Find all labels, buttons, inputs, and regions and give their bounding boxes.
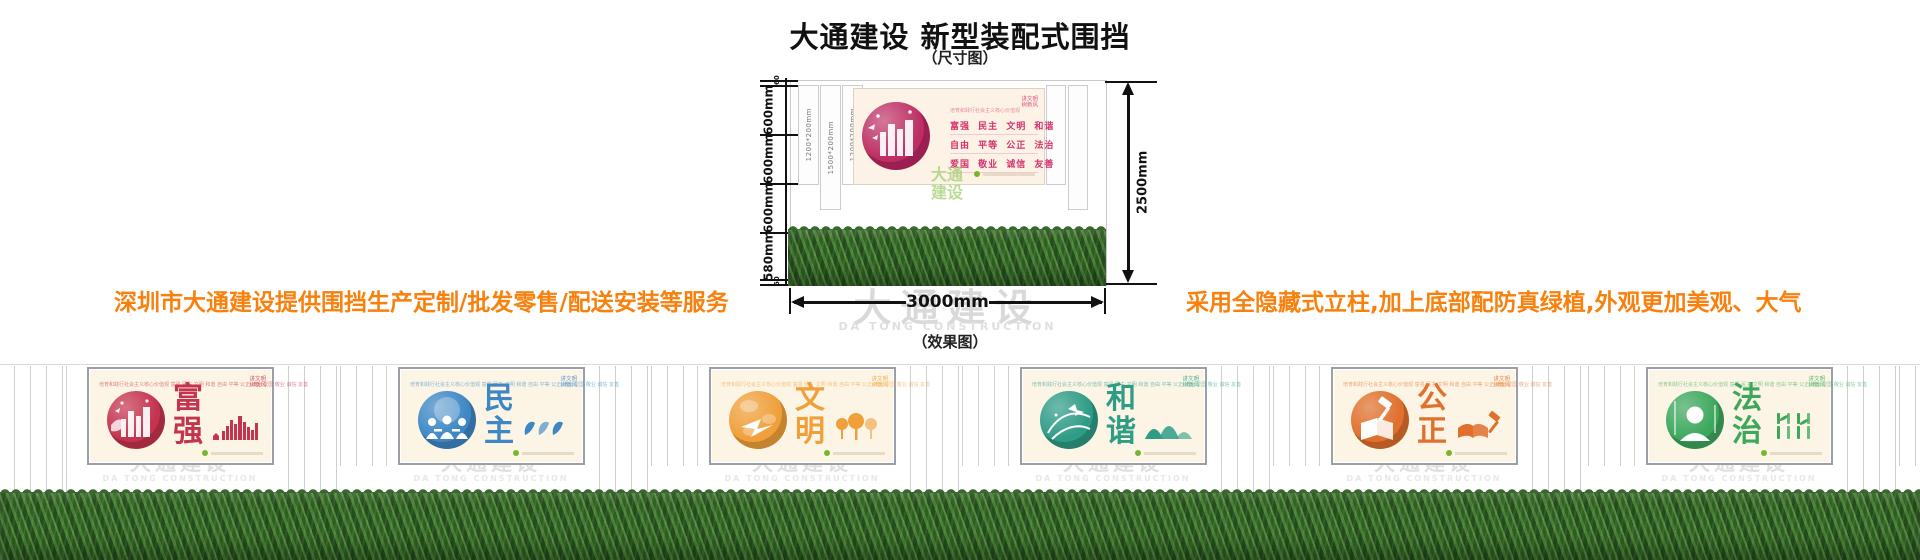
fence-post-cluster [1588, 366, 1635, 466]
prosperity-artwork-icon [107, 391, 165, 449]
arrow-down-icon [1122, 270, 1134, 283]
harmony-artwork-icon [1040, 391, 1098, 449]
arrow-left-icon [791, 296, 804, 308]
doves-icon [523, 411, 571, 441]
word-char: 正 [1413, 415, 1451, 448]
corner-slogan: 讲文明 树新风 [1022, 96, 1039, 108]
height-dimension-line [785, 78, 787, 284]
papercut-skyline-icon [862, 102, 930, 170]
fence-post-cluster [651, 366, 698, 466]
green-dot-icon [974, 171, 980, 177]
word-char: 法 [1728, 382, 1766, 415]
green-dot-icon [1761, 450, 1767, 456]
watermark-en: DA TONG CONSTRUCTION [1023, 474, 1203, 483]
value-panel-minzhu: 培育和践行社会主义核心价值观 富强 民主 文明 和谐 自由 平等 公正 法治 爱… [398, 367, 585, 465]
green-logo-line: 建设 [927, 184, 967, 202]
size-view-label: （尺寸图） [0, 47, 1920, 68]
corner-slogan-line: 树新风 [1809, 382, 1826, 388]
stamp-text-bar [983, 173, 1035, 176]
rule-of-law-artwork-icon [1666, 391, 1724, 449]
bamboo-icon [1771, 411, 1819, 441]
dim-extension [1104, 288, 1106, 314]
effect-view-label: （效果图） [880, 331, 1020, 352]
page-root: { "title": "大通建设 新型装配式围挡", "labels": { "… [0, 0, 1920, 560]
hedge-greenery-row [0, 492, 1920, 560]
stamp-text-bar [1455, 452, 1507, 455]
mountains-icon [1145, 411, 1193, 441]
left-service-note: 深圳市大通建设提供围挡生产定制/批发零售/配送安装等服务 [114, 283, 729, 317]
arrow-up-icon [1122, 82, 1134, 95]
stamp-line [1446, 450, 1507, 456]
stamp-text-bar [1144, 452, 1196, 455]
fence-post-cluster [1899, 366, 1920, 466]
values-row: 富强 民主 文明 和谐 [950, 116, 1038, 135]
green-dot-icon [1446, 450, 1452, 456]
value-panel-hexie: 培育和践行社会主义核心价值观 富强 民主 文明 和谐 自由 平等 公正 法治 爱… [1020, 367, 1207, 465]
fence-post-cluster [962, 366, 1009, 466]
watermark-en: DA TONG CONSTRUCTION [90, 474, 270, 483]
panel-header-slogan: 培育和践行社会主义核心价值观 [950, 106, 1020, 114]
height-segment-label: 600mm [760, 85, 777, 134]
height-segment-label: 580mm [760, 232, 777, 279]
right-feature-note: 采用全隐藏式立柱,加上底部配防真绿植,外观更加美观、大气 [1186, 283, 1801, 317]
total-width-line [794, 301, 906, 304]
fence-post: 1200*200mm [798, 85, 819, 185]
panel-word: 法 治 [1728, 382, 1766, 448]
word-char: 治 [1728, 415, 1766, 448]
stamp-line [1135, 450, 1196, 456]
value-panel-gongzheng: 培育和践行社会主义核心价值观 富强 民主 文明 和谐 自由 平等 公正 法治 爱… [1331, 367, 1518, 465]
corner-slogan: 讲文明 树新风 [1809, 376, 1826, 388]
fence-top-edge [0, 364, 1920, 365]
stamp-line [513, 450, 574, 456]
word-char: 明 [791, 415, 829, 448]
corner-slogan: 讲文明 树新风 [561, 376, 578, 388]
stamp-line [824, 450, 885, 456]
hedge-greenery-diagram [788, 229, 1106, 286]
corner-slogan-line: 树新风 [1022, 102, 1039, 108]
city-papercut-artwork-icon [862, 102, 930, 170]
values-row: 自由 平等 公正 法治 [950, 135, 1038, 154]
green-dot-icon [513, 450, 519, 456]
word-char: 和 [1102, 382, 1140, 415]
stamp-line [1761, 450, 1822, 456]
stamp-text-bar [1770, 452, 1822, 455]
trees-icon [834, 411, 882, 441]
datong-green-logo: 大通 建设 [927, 166, 967, 202]
corner-slogan-line: 树新风 [1494, 382, 1511, 388]
stamp-line [202, 450, 263, 456]
panel-word: 富 强 [169, 382, 207, 448]
fence-post-cluster [14, 366, 67, 492]
civilization-artwork-icon [729, 391, 787, 449]
dim-tick [1105, 283, 1157, 285]
corner-slogan-line: 树新风 [1183, 382, 1200, 388]
core-values-rows: 富强 民主 文明 和谐 自由 平等 公正 法治 爱国 敬业 诚信 友善 [950, 116, 1038, 173]
word-char: 公 [1413, 382, 1451, 415]
watermark-en: DA TONG CONSTRUCTION [1334, 474, 1514, 483]
corner-slogan: 讲文明 树新风 [1183, 376, 1200, 388]
democracy-artwork-icon [418, 391, 476, 449]
corner-slogan: 讲文明 树新风 [250, 376, 267, 388]
word-char: 主 [480, 415, 518, 448]
post-size-label: 1200*200mm [805, 108, 813, 161]
fence-post: 1500*200mm [820, 85, 841, 210]
total-width-line [989, 301, 1102, 304]
green-logo-line: 大通 [927, 166, 967, 184]
height-segment-label: 600mm [760, 134, 777, 183]
fence-post [1046, 85, 1066, 185]
height-segment-label: 600mm [760, 183, 777, 232]
watermark-en: DA TONG CONSTRUCTION [712, 474, 892, 483]
arrow-right-icon [1091, 296, 1104, 308]
city-skyline-icon [212, 411, 260, 441]
fence-post-cluster [1273, 366, 1320, 466]
watermark-en: DA TONG CONSTRUCTION [1649, 474, 1829, 483]
corner-slogan: 讲文明 树新风 [1494, 376, 1511, 388]
panel-word: 和 谐 [1102, 382, 1140, 448]
total-width-label: 3000mm [900, 292, 995, 312]
stamp-text-bar [833, 452, 885, 455]
corner-slogan-line: 树新风 [561, 382, 578, 388]
stamp-text-bar [211, 452, 263, 455]
green-dot-icon [824, 450, 830, 456]
total-height-label: 2500mm [1134, 84, 1152, 280]
book-gavel-icon [1456, 411, 1504, 441]
green-dot-icon [1135, 450, 1141, 456]
panel-word: 文 明 [791, 382, 829, 448]
stamp-text-bar [522, 452, 574, 455]
fence-post [1068, 85, 1088, 210]
height-segment-label: 60 [772, 276, 782, 286]
word-char: 富 [169, 382, 207, 415]
corner-slogan: 讲文明 树新风 [872, 376, 889, 388]
watermark-en: DA TONG CONSTRUCTION [401, 474, 581, 483]
post-size-label: 1500*200mm [827, 121, 835, 174]
justice-artwork-icon [1351, 391, 1409, 449]
panel-word: 公 正 [1413, 382, 1451, 448]
corner-slogan-line: 树新风 [872, 382, 889, 388]
value-panel-fazhi: 培育和践行社会主义核心价值观 富强 民主 文明 和谐 自由 平等 公正 法治 爱… [1646, 367, 1833, 465]
fence-post-cluster [340, 366, 387, 466]
word-char: 强 [169, 415, 207, 448]
green-dot-icon [202, 450, 208, 456]
word-char: 谐 [1102, 415, 1140, 448]
panel-word: 民 主 [480, 382, 518, 448]
value-panel-fuqiang: 培育和践行社会主义核心价值观 富强 民主 文明 和谐 自由 平等 公正 法治 爱… [87, 367, 274, 465]
word-char: 民 [480, 382, 518, 415]
stamp-line [974, 171, 1035, 177]
corner-slogan-line: 树新风 [250, 382, 267, 388]
value-panel-wenming: 培育和践行社会主义核心价值观 富强 民主 文明 和谐 自由 平等 公正 法治 爱… [709, 367, 896, 465]
word-char: 文 [791, 382, 829, 415]
total-height-line [1127, 86, 1130, 278]
